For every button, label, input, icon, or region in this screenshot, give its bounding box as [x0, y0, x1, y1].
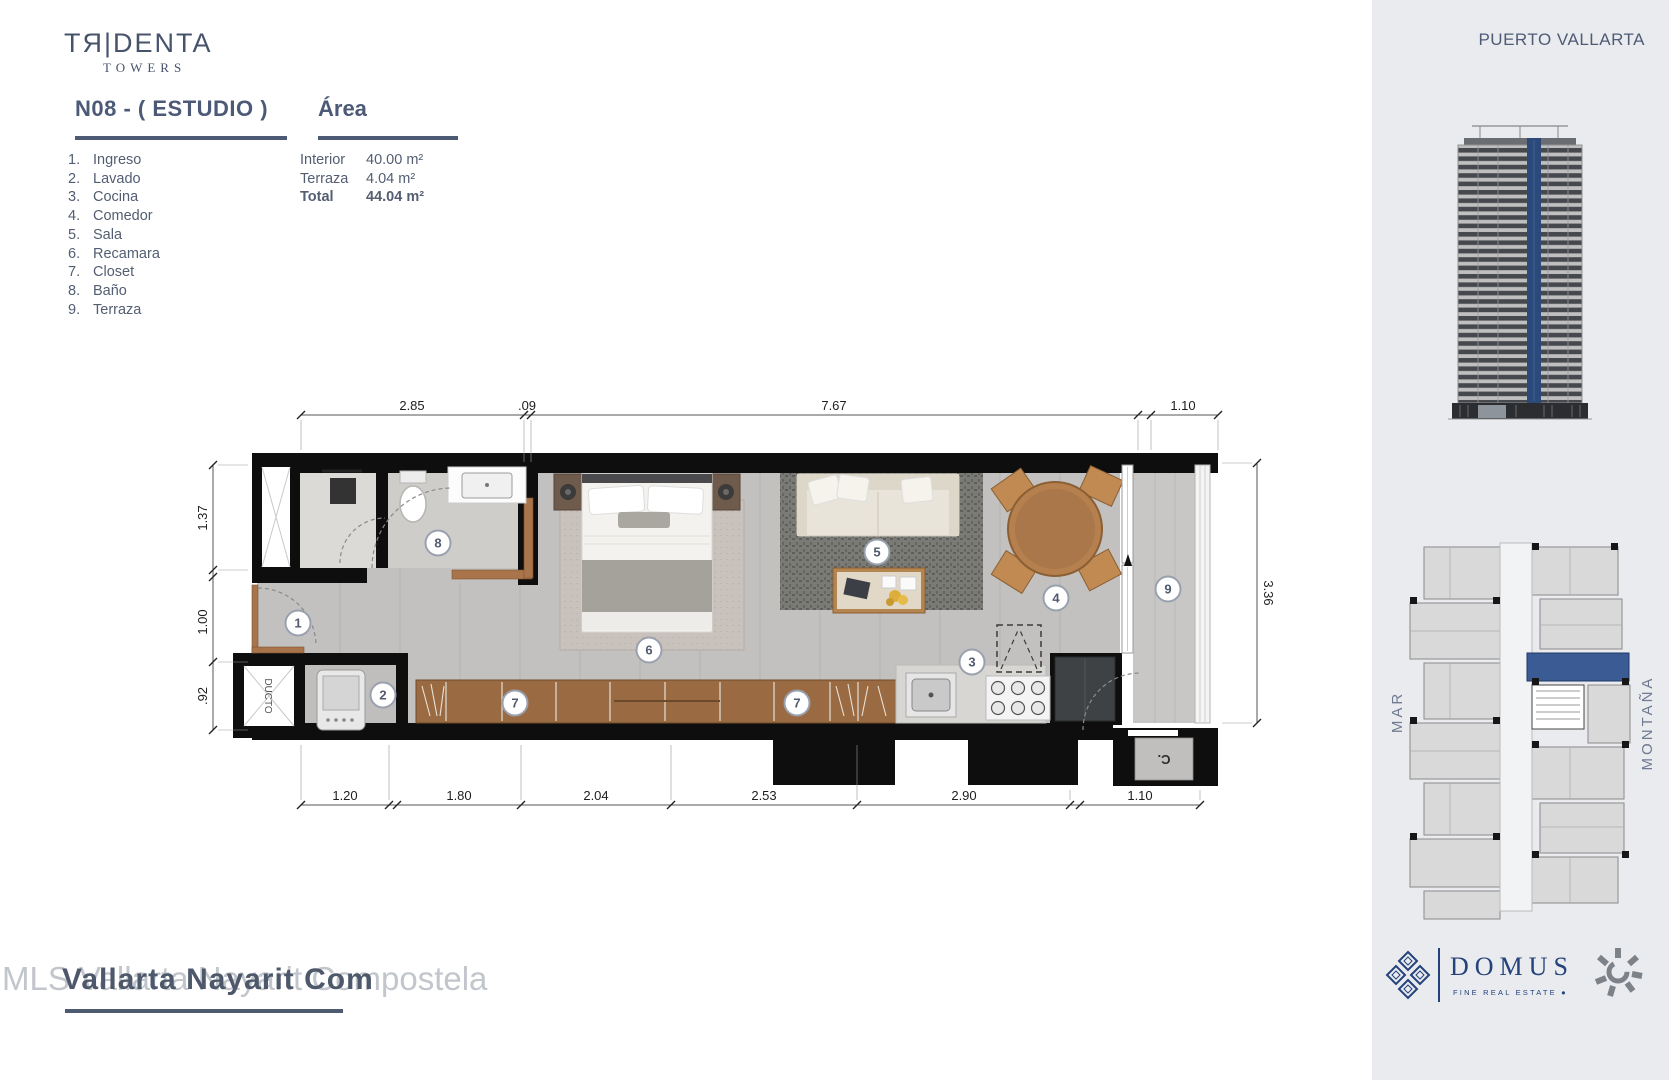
svg-text:4: 4: [1052, 591, 1060, 606]
marker-closet-2: 7: [785, 691, 810, 716]
dim-left-2: 1.00: [195, 609, 210, 634]
legend-item-label: Sala: [93, 226, 122, 245]
washing-machine: [317, 670, 365, 730]
svg-text:8: 8: [434, 536, 441, 551]
sliding-door: [1122, 465, 1133, 653]
legend-item: 6.Recamara: [68, 245, 160, 264]
area-table: Interior40.00 m² Terraza4.04 m² Total44.…: [300, 151, 424, 207]
terrace-rail: [1195, 465, 1210, 723]
svg-text:7: 7: [511, 696, 518, 711]
room-legend: 1.Ingreso 2.Lavado 3.Cocina 4.Comedor 5.…: [68, 151, 160, 319]
bathroom-sink: [448, 467, 526, 503]
emblem-icon: [1588, 942, 1648, 1002]
marker-terraza: 9: [1156, 577, 1181, 602]
legend-item-number: 4.: [68, 207, 93, 226]
legend-item: 4.Comedor: [68, 207, 160, 226]
keyplan-highlighted-unit: [1527, 653, 1629, 681]
brand-logo-sub: TOWERS: [103, 60, 186, 76]
legend-item: 5.Sala: [68, 226, 160, 245]
closet-label: C.: [1158, 752, 1171, 767]
area-row: Interior40.00 m²: [300, 151, 424, 170]
nightstand: [554, 474, 582, 510]
legend-item-number: 5.: [68, 226, 93, 245]
dim-bottom-3: 2.04: [583, 788, 608, 803]
area-label: Total: [300, 188, 366, 207]
domus-tagline-dot: ●: [1561, 988, 1568, 997]
page-title: N08 - ( ESTUDIO ): [75, 96, 268, 122]
area-value: 4.04 m²: [366, 170, 415, 189]
marker-closet-1: 7: [503, 691, 528, 716]
legend-item-number: 7.: [68, 263, 93, 282]
dim-left-1: 1.37: [195, 505, 210, 530]
dim-top-1: 2.85: [399, 398, 424, 413]
legend-item-number: 2.: [68, 170, 93, 189]
keyplan-stairs: [1532, 685, 1584, 729]
marker-recamara: 6: [637, 638, 662, 663]
legend-item-label: Ingreso: [93, 151, 141, 170]
svg-text:2: 2: [379, 688, 386, 703]
legend-item-number: 6.: [68, 245, 93, 264]
legend-item-label: Lavado: [93, 170, 141, 189]
legend-item: 3.Cocina: [68, 188, 160, 207]
nightstand: [712, 474, 740, 510]
area-underline: [318, 136, 458, 140]
keyplan: MAR MONTAÑA: [1380, 535, 1669, 925]
marker-comedor: 4: [1044, 586, 1069, 611]
coffee-table: [833, 568, 925, 613]
domus-divider: [1438, 948, 1440, 1002]
marker-ingreso: 1: [286, 611, 311, 636]
dim-top-2: .09: [518, 398, 536, 413]
domus-tagline-text: FINE REAL ESTATE: [1453, 988, 1557, 997]
dim-top-4: 1.10: [1170, 398, 1195, 413]
legend-item: 2.Lavado: [68, 170, 160, 189]
location-label: PUERTO VALLARTA: [1463, 30, 1645, 50]
legend-item: 7.Closet: [68, 263, 160, 282]
mar-label: MAR: [1389, 691, 1406, 733]
brand-logo: TЯ|DENTA: [64, 28, 213, 59]
keyplan-corridor: [1500, 543, 1532, 911]
area-row-total: Total44.04 m²: [300, 188, 424, 207]
svg-text:6: 6: [645, 643, 652, 658]
dim-bottom-5: 2.90: [951, 788, 976, 803]
shaft-entry: [262, 467, 290, 567]
legend-item-number: 1.: [68, 151, 93, 170]
watermark-underline: [65, 1009, 343, 1013]
svg-text:5: 5: [873, 545, 880, 560]
legend-item: 8.Baño: [68, 282, 160, 301]
domus-tagline: FINE REAL ESTATE ●: [1453, 988, 1568, 997]
legend-item-label: Recamara: [93, 245, 160, 264]
dim-bottom-4: 2.53: [751, 788, 776, 803]
dim-top-3: 7.67: [821, 398, 846, 413]
marker-lavado: 2: [371, 683, 396, 708]
domus-wordmark: DOMUS: [1450, 952, 1574, 982]
domus-icon: [1385, 948, 1433, 1002]
svg-text:1: 1: [294, 616, 301, 631]
legend-item-label: Comedor: [93, 207, 153, 226]
legend-item-number: 3.: [68, 188, 93, 207]
legend-item-number: 9.: [68, 301, 93, 320]
svg-text:7: 7: [793, 696, 800, 711]
legend-item: 9.Terraza: [68, 301, 160, 320]
area-label: Interior: [300, 151, 366, 170]
dim-right-1: 3.36: [1261, 580, 1276, 605]
watermark-dark: Vallarta Nayarit Com: [62, 963, 374, 997]
legend-item-number: 8.: [68, 282, 93, 301]
legend-item-label: Terraza: [93, 301, 141, 320]
marker-sala: 5: [865, 540, 890, 565]
legend-item-label: Baño: [93, 282, 127, 301]
montana-label: MONTAÑA: [1639, 676, 1656, 771]
title-underline: [75, 136, 287, 140]
ducto-label: DUCTO: [262, 678, 273, 714]
bed: [582, 474, 712, 632]
marker-cocina: 3: [960, 650, 985, 675]
dim-bottom-6: 1.10: [1127, 788, 1152, 803]
dim-left-3: .92: [195, 687, 210, 705]
area-value: 40.00 m²: [366, 151, 423, 170]
area-value: 44.04 m²: [366, 188, 424, 207]
floor-plan: DUCTO C.: [190, 370, 1280, 820]
area-row: Terraza4.04 m²: [300, 170, 424, 189]
svg-text:9: 9: [1164, 582, 1171, 597]
ducto-shaft: DUCTO: [244, 666, 294, 726]
wardrobe: [416, 680, 896, 723]
marker-bano: 8: [426, 531, 451, 556]
sofa: [797, 474, 959, 536]
legend-item-label: Closet: [93, 263, 134, 282]
legend-item: 1.Ingreso: [68, 151, 160, 170]
area-label: Terraza: [300, 170, 366, 189]
toilet: [400, 471, 426, 522]
tower-illustration: [1440, 118, 1600, 428]
legend-item-label: Cocina: [93, 188, 138, 207]
svg-text:3: 3: [968, 655, 975, 670]
area-heading: Área: [318, 96, 367, 122]
dim-bottom-2: 1.80: [446, 788, 471, 803]
dim-bottom-1: 1.20: [332, 788, 357, 803]
